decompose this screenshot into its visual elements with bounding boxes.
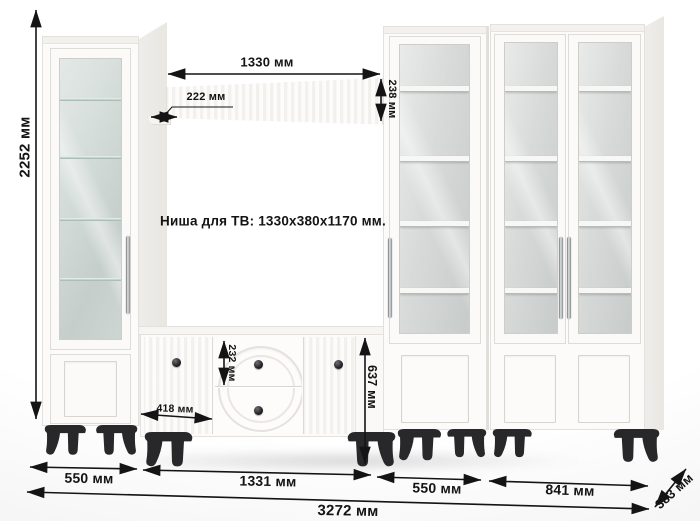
- furniture-dimension-diagram: 2252 мм 1330 мм 222 мм 238 мм Ниша для Т…: [0, 0, 700, 521]
- dim-shelf-depth-label: 222 мм: [187, 91, 226, 103]
- dim-shelf-length-label: 1330 мм: [240, 55, 293, 70]
- dim-left-cabinet-width-label: 550 мм: [64, 470, 113, 487]
- dim-shelf-height-label: 238 мм: [386, 80, 398, 119]
- dim-total-height-label: 2252 мм: [17, 116, 34, 177]
- dim-double-cabinet-width-label: 841 мм: [545, 481, 595, 499]
- dim-total-width-label: 3272 мм: [317, 502, 378, 520]
- dim-door-width-label: 418 мм: [156, 402, 194, 415]
- dim-stand-height-label: 637 мм: [365, 365, 379, 409]
- dim-drawer-height-label: 232 мм: [226, 344, 238, 381]
- tv-niche-note: Ниша для ТВ: 1330x380x1170 мм.: [160, 214, 386, 229]
- dim-left-cabinet-width-line: [30, 467, 137, 469]
- dimension-arrows: [0, 0, 700, 521]
- dim-shelf-depth-leader: [164, 107, 233, 116]
- dim-right-cabinet-width-label: 550 мм: [412, 479, 462, 496]
- dim-stand-width-label: 1331 мм: [239, 473, 296, 490]
